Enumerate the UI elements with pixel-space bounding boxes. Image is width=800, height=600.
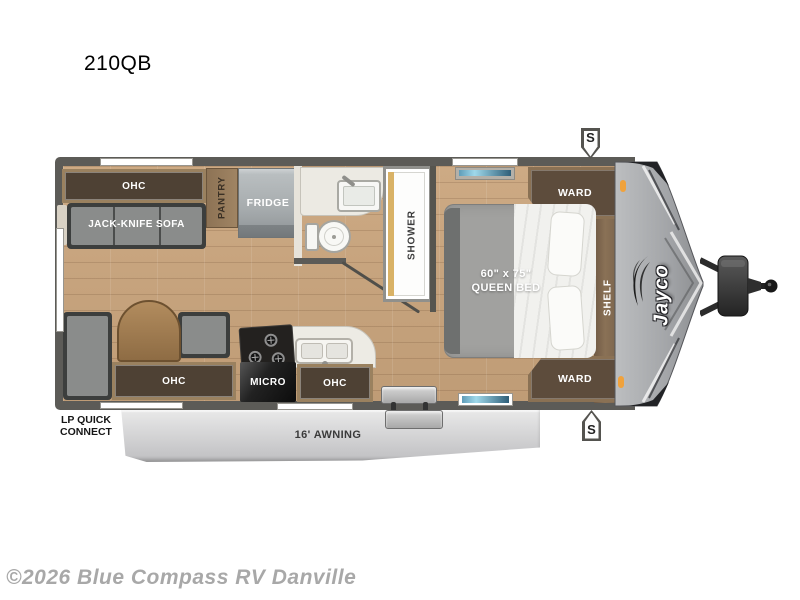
pantry-label: PANTRY bbox=[206, 170, 238, 226]
nightstand-glass bbox=[459, 170, 511, 176]
marker-light-icon bbox=[618, 376, 624, 388]
dinette-bench-left bbox=[63, 312, 112, 400]
hitch-ball-icon bbox=[765, 280, 778, 293]
bed-size-label: 60" x 75" bbox=[447, 268, 565, 281]
floorplan-page: 210QB 16' AWNING OHC JACK-KNIFE SOFA PAN… bbox=[0, 0, 800, 600]
bedroom-partition-wall bbox=[430, 166, 436, 312]
dinette-bench-right bbox=[178, 312, 230, 358]
speaker-icon-top: S bbox=[581, 128, 600, 159]
burner-icon bbox=[264, 333, 278, 347]
bathroom-sink bbox=[337, 180, 381, 212]
sink-basin bbox=[326, 343, 348, 359]
window-bottom-bed-glass bbox=[462, 396, 509, 403]
microwave: MICRO bbox=[240, 362, 296, 402]
lp-label-line2: CONNECT bbox=[52, 426, 120, 438]
window-rear bbox=[56, 228, 64, 332]
floorplan-model-title: 210QB bbox=[84, 52, 152, 76]
entry-step bbox=[381, 386, 437, 404]
pillow bbox=[547, 285, 585, 351]
entry-step bbox=[385, 410, 443, 429]
microwave-label: MICRO bbox=[250, 377, 286, 388]
window-bottom-dinette bbox=[100, 402, 183, 409]
ohc-kitchen-label: OHC bbox=[323, 378, 347, 389]
toilet-flush-icon bbox=[332, 235, 336, 239]
ohc-cabinet-dinette: OHC bbox=[112, 362, 236, 400]
lp-quick-connect-label: LP QUICK CONNECT bbox=[52, 414, 120, 438]
bed-type-label: QUEEN BED bbox=[447, 282, 565, 295]
wardrobe-top-label: WARD bbox=[558, 187, 592, 199]
hitch bbox=[700, 248, 785, 326]
speaker-icon-bottom: S bbox=[582, 410, 601, 441]
fridge-label: FRIDGE bbox=[247, 197, 290, 209]
sofa-label: JACK-KNIFE SOFA bbox=[67, 219, 206, 231]
fridge: FRIDGE bbox=[238, 168, 298, 238]
ohc-cabinet-kitchen: OHC bbox=[297, 364, 373, 402]
jayco-logo: Jayco bbox=[648, 244, 676, 346]
dinette-cushion bbox=[67, 316, 108, 396]
shower-door-frame bbox=[388, 172, 394, 296]
window-bottom-kitchen bbox=[277, 403, 353, 410]
sink-basin bbox=[301, 343, 323, 359]
wardrobe-bottom-label: WARD bbox=[558, 373, 592, 385]
ohc-cabinet-rear: OHC bbox=[62, 169, 206, 203]
bed-foot-blanket bbox=[444, 208, 460, 354]
dinette-table bbox=[117, 300, 181, 362]
sink-basin bbox=[343, 186, 375, 206]
marker-light-icon bbox=[620, 180, 626, 192]
speaker-letter: S bbox=[582, 422, 601, 437]
wardrobe-bottom: WARD bbox=[528, 356, 622, 402]
bathroom-bottom-wall bbox=[294, 258, 346, 264]
window-top-sofa bbox=[100, 158, 193, 166]
toilet-bowl bbox=[317, 220, 351, 253]
dinette-cushion bbox=[182, 316, 226, 354]
lp-label-line1: LP QUICK bbox=[52, 414, 120, 426]
ohc-dinette-label: OHC bbox=[162, 376, 186, 387]
watermark: ©2026 Blue Compass RV Danville bbox=[6, 566, 356, 590]
window-top-bed bbox=[452, 158, 518, 166]
awning-label: 16' AWNING bbox=[278, 429, 378, 442]
shower-label: SHOWER bbox=[397, 180, 427, 290]
ohc-rear-label: OHC bbox=[122, 181, 146, 192]
speaker-letter: S bbox=[581, 130, 600, 145]
